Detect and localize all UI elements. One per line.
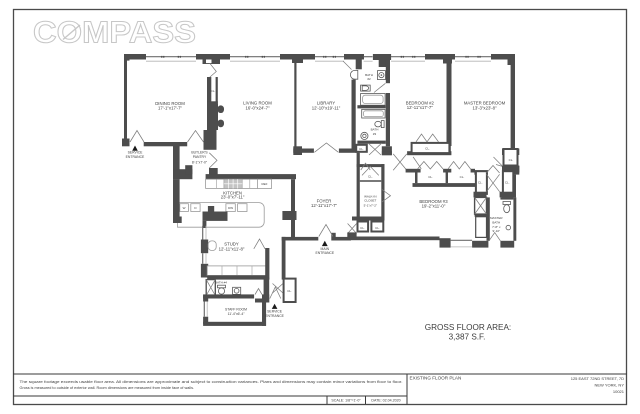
svg-text:DATE: 02.04.2020: DATE: 02.04.2020	[371, 399, 400, 403]
svg-text:CL.: CL.	[287, 289, 292, 293]
svg-text:ENTRANCE: ENTRANCE	[126, 155, 145, 159]
svg-text:16'-0"x24'-7": 16'-0"x24'-7"	[245, 105, 270, 110]
svg-text:The square footage exceeds usa: The square footage exceeds usable floor …	[20, 380, 403, 384]
svg-text:STAFF ROOM: STAFF ROOM	[225, 308, 247, 312]
svg-text:ENTRANCE: ENTRANCE	[315, 251, 334, 255]
svg-text:MASTER: MASTER	[490, 216, 503, 220]
svg-text:3,387 S.F.: 3,387 S.F.	[449, 333, 486, 342]
svg-text:8'-1"x7'-0": 8'-1"x7'-0"	[192, 161, 208, 165]
svg-text:CL.: CL.	[359, 147, 364, 151]
svg-text:DW: DW	[228, 206, 233, 210]
svg-text:12'-11"x11'-8": 12'-11"x11'-8"	[219, 246, 245, 251]
svg-text:13'-3"x23'-8": 13'-3"x23'-8"	[472, 106, 497, 111]
svg-text:#3: #3	[373, 132, 377, 136]
svg-text:GROSS FLOOR AREA:: GROSS FLOOR AREA:	[425, 323, 511, 332]
svg-text:CL.: CL.	[425, 147, 430, 151]
svg-text:10021: 10021	[613, 389, 625, 394]
svg-text:W: W	[183, 206, 186, 210]
svg-text:NEW YORK, NY: NEW YORK, NY	[595, 383, 625, 388]
svg-text:BATH: BATH	[371, 127, 379, 131]
svg-text:CL.: CL.	[460, 175, 465, 179]
svg-text:COMPASS: COMPASS	[33, 16, 196, 50]
svg-text:23'-0"x7'-11": 23'-0"x7'-11"	[221, 195, 245, 200]
svg-text:PANTRY: PANTRY	[193, 155, 207, 159]
svg-text:CL.: CL.	[428, 175, 433, 179]
svg-text:12'-11"x17'-7": 12'-11"x17'-7"	[311, 203, 338, 208]
svg-text:BUTLER'S: BUTLER'S	[191, 150, 208, 154]
svg-text:ENTRANCE: ENTRANCE	[265, 314, 284, 318]
svg-text:17'-1"x17'-7": 17'-1"x17'-7"	[158, 105, 183, 110]
svg-text:BATH: BATH	[365, 73, 373, 77]
svg-text:CL.: CL.	[211, 89, 216, 93]
svg-text:12'-11"x17'-7": 12'-11"x17'-7"	[407, 105, 434, 110]
svg-text:REF: REF	[262, 182, 268, 186]
svg-text:11'-4"x6'-4": 11'-4"x6'-4"	[228, 312, 246, 316]
svg-text:CL.: CL.	[375, 226, 380, 230]
svg-text:SCALE: 1/8"=1'-0": SCALE: 1/8"=1'-0"	[331, 399, 361, 403]
svg-text:CLOSET: CLOSET	[364, 199, 376, 203]
svg-text:5'-1"x7'-2": 5'-1"x7'-2"	[364, 203, 377, 207]
svg-text:CL.: CL.	[368, 175, 373, 179]
svg-text:19'-2"x11'-0": 19'-2"x11'-0"	[422, 204, 446, 209]
svg-text:Gross is measured to outside o: Gross is measured to outside of exterior…	[20, 386, 195, 390]
svg-text:CL.: CL.	[509, 158, 514, 162]
svg-text:CL.: CL.	[478, 181, 483, 185]
svg-text:12'-10"x19'-11": 12'-10"x19'-11"	[312, 105, 341, 110]
svg-text:CL.: CL.	[360, 226, 365, 230]
svg-text:125 EAST 72ND STREET, 7D: 125 EAST 72ND STREET, 7D	[571, 376, 624, 381]
svg-text:CL.: CL.	[505, 181, 510, 185]
svg-text:#2: #2	[367, 77, 371, 81]
svg-text:BATH: BATH	[492, 220, 500, 224]
svg-text:7'-8" x: 7'-8" x	[492, 225, 501, 229]
svg-text:BATH #4: BATH #4	[215, 280, 227, 284]
svg-text:9'-10": 9'-10"	[492, 229, 500, 233]
svg-text:EXISTING FLOOR PLAN: EXISTING FLOOR PLAN	[410, 375, 462, 380]
